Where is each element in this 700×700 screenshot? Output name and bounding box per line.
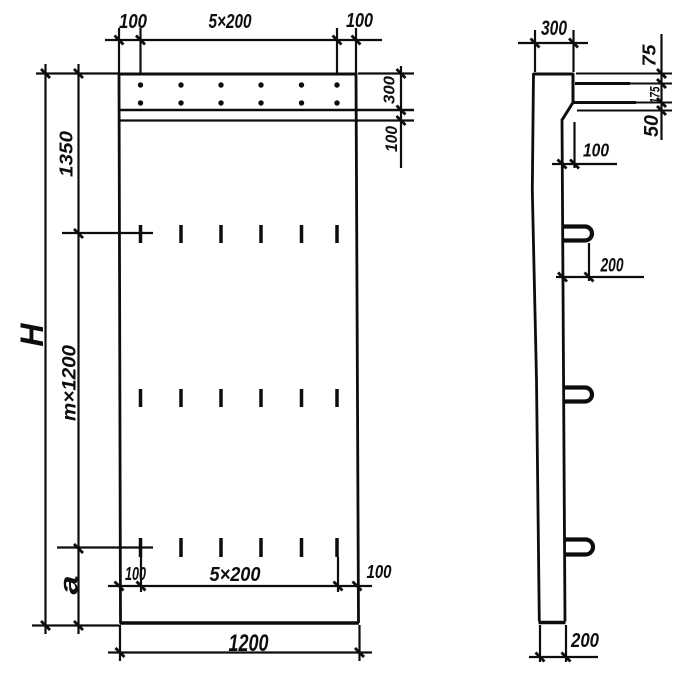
svg-text:100: 100	[382, 126, 401, 152]
svg-text:200: 200	[570, 630, 599, 652]
svg-text:300: 300	[382, 76, 399, 104]
svg-text:100: 100	[125, 564, 146, 584]
svg-text:75: 75	[640, 43, 660, 66]
svg-text:H: H	[14, 323, 50, 347]
svg-text:200: 200	[600, 256, 624, 277]
svg-text:100: 100	[367, 562, 392, 582]
svg-text:100: 100	[583, 141, 609, 161]
svg-text:a: a	[54, 576, 84, 595]
svg-text:300: 300	[541, 17, 567, 40]
svg-text:5×200: 5×200	[209, 11, 252, 33]
svg-text:100: 100	[346, 10, 373, 32]
svg-text:m×1200: m×1200	[60, 345, 81, 421]
svg-text:175: 175	[647, 86, 663, 103]
svg-text:1200: 1200	[229, 630, 269, 657]
svg-text:50: 50	[641, 115, 663, 137]
svg-text:100: 100	[119, 11, 147, 33]
svg-text:5×200: 5×200	[210, 564, 261, 586]
svg-text:1350: 1350	[57, 131, 77, 177]
